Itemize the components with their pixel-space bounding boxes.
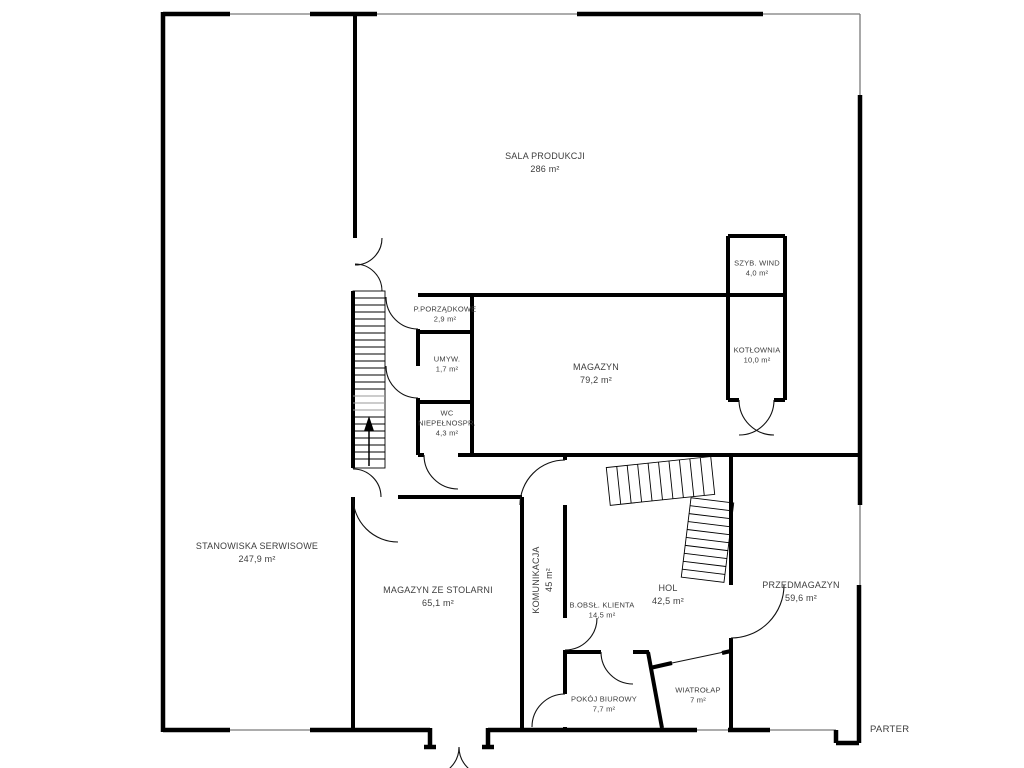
room-label-umyw: UMYW. 1,7 m² (434, 355, 460, 374)
stair-arrowhead (364, 416, 374, 431)
room-label-pokoj-biurowy: POKÓJ BIUROWY 7,7 m² (571, 695, 637, 714)
room-label-p-porzadkowe: P.PORZĄDKOWE 2,9 m² (414, 305, 477, 324)
room-subname: NIEPEŁNOSPR. (418, 419, 476, 428)
room-name: MAGAZYN (573, 362, 619, 373)
room-area: 14,5 m² (589, 611, 616, 620)
room-label-magazyn-ze-stolarni: MAGAZYN ZE STOLARNI 65,1 m² (383, 585, 493, 609)
room-area: 4,3 m² (436, 429, 458, 438)
floor-level-label: PARTER (870, 724, 909, 735)
room-name: KOMUNIKACJA (531, 546, 542, 613)
room-name: UMYW. (434, 355, 460, 364)
room-name: MAGAZYN ZE STOLARNI (383, 585, 493, 596)
room-area: 247,9 m² (238, 554, 275, 565)
room-label-przedmagazyn: PRZEDMAGAZYN 59,6 m² (762, 580, 839, 604)
room-name: WIATROŁAP (675, 686, 720, 695)
room-label-b-obsl-klienta: B.OBSŁ. KLIENTA 14,5 m² (570, 601, 635, 620)
room-area: 65,1 m² (422, 598, 454, 609)
room-label-sala-produkcji: SALA PRODUKCJI 286 m² (505, 151, 585, 175)
room-area: 42,5 m² (652, 596, 684, 607)
room-name: SALA PRODUKCJI (505, 151, 585, 162)
room-label-komunikacja: KOMUNIKACJA 45 m² (531, 546, 555, 613)
room-area: 10,0 m² (744, 356, 771, 365)
room-label-magazyn: MAGAZYN 79,2 m² (573, 362, 619, 386)
floor-plan-drawing (0, 0, 1024, 768)
room-name: KOTŁOWNIA (734, 346, 781, 355)
room-name: PRZEDMAGAZYN (762, 580, 839, 591)
outer-walls (163, 12, 860, 747)
room-area: 286 m² (530, 164, 559, 175)
room-label-szyb-wind: SZYB. WIND 4,0 m² (734, 259, 780, 278)
room-name: SZYB. WIND (734, 259, 780, 268)
room-area: 45 m² (544, 568, 555, 592)
room-area: 7,7 m² (593, 705, 615, 714)
room-name: WC (441, 409, 454, 418)
room-area: 7 m² (690, 696, 706, 705)
room-name: POKÓJ BIUROWY (571, 695, 637, 704)
room-label-stanowiska-serwisowe: STANOWISKA SERWISOWE 247,9 m² (196, 541, 318, 565)
room-area: 2,9 m² (434, 315, 456, 324)
room-area: 59,6 m² (785, 593, 817, 604)
staircase-main (353, 291, 385, 468)
room-name: HOL (658, 583, 677, 594)
room-label-wc-niepelnospr: WC NIEPEŁNOSPR. 4,3 m² (418, 409, 476, 438)
room-name: P.PORZĄDKOWE (414, 305, 477, 314)
floor-plan: SALA PRODUKCJI 286 m² SZYB. WIND 4,0 m² … (0, 0, 1024, 768)
room-name: STANOWISKA SERWISOWE (196, 541, 318, 552)
window-walls (230, 14, 860, 730)
room-label-hol: HOL 42,5 m² (652, 583, 684, 607)
room-area: 79,2 m² (580, 375, 612, 386)
staircase-hol (606, 457, 733, 583)
room-label-kotlownia: KOTŁOWNIA 10,0 m² (734, 346, 781, 365)
room-area: 1,7 m² (436, 365, 458, 374)
room-name: B.OBSŁ. KLIENTA (570, 601, 635, 610)
room-area: 4,0 m² (746, 269, 768, 278)
room-label-wiatrolap: WIATROŁAP 7 m² (675, 686, 720, 705)
